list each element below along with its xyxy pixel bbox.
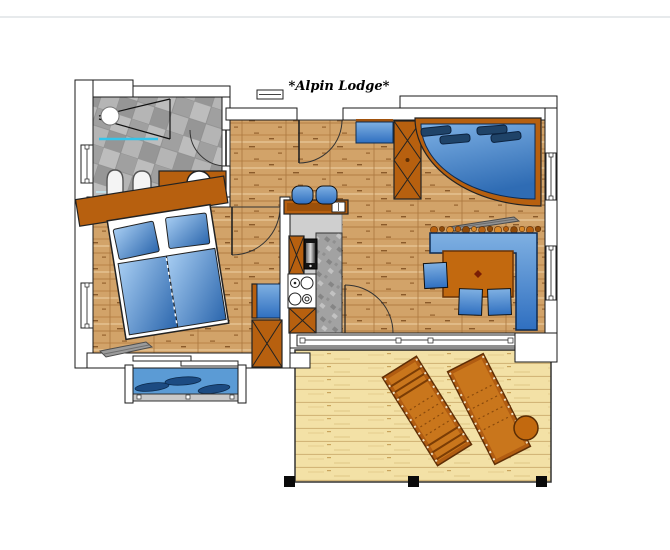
terrace-side-table — [514, 416, 538, 440]
terrace-post — [536, 476, 547, 487]
bedroom-chair — [252, 284, 280, 318]
railing-mark — [137, 395, 141, 399]
kitchen — [284, 186, 348, 333]
shower-drain-icon — [101, 107, 119, 125]
railing-mark — [186, 395, 190, 399]
wall-hall-top — [226, 108, 297, 120]
oven — [304, 239, 317, 269]
kitchen-cabinet-lower — [289, 308, 316, 333]
window-niche-marker — [257, 90, 283, 99]
window-living-right-upper — [546, 153, 556, 200]
terrace-post — [284, 476, 295, 487]
window-bathroom-left — [81, 145, 93, 183]
floor-plan-svg: *Alpin Lodge* — [0, 0, 670, 550]
railing-mark — [230, 395, 234, 399]
window-bedroom-left — [81, 283, 93, 328]
dining-chair — [423, 262, 447, 288]
kitchen-counter — [316, 233, 342, 333]
wall-top-right-step — [400, 96, 557, 108]
wall-bath-top — [133, 86, 230, 97]
bedroom-wardrobe — [252, 320, 282, 367]
wall-corner-block — [515, 333, 557, 362]
plan-title: *Alpin Lodge* — [289, 79, 390, 94]
sideboard — [356, 119, 393, 143]
bed-duvets — [118, 248, 226, 334]
dining-chair — [459, 289, 483, 316]
balcony-railing — [133, 394, 238, 401]
stove — [288, 274, 316, 308]
terrace-post — [408, 476, 419, 487]
wall-right — [545, 108, 557, 348]
dining-chair — [488, 289, 512, 316]
balcony — [133, 368, 238, 401]
wall-balcony-left — [125, 365, 133, 403]
window-terrace-sliding-door — [297, 335, 515, 346]
floor-plan-page: *Alpin Lodge* — [0, 0, 670, 550]
wall-balcony-right — [238, 365, 246, 403]
kitchen-cabinet-upper — [289, 236, 304, 274]
window-living-right-lower — [546, 246, 556, 300]
